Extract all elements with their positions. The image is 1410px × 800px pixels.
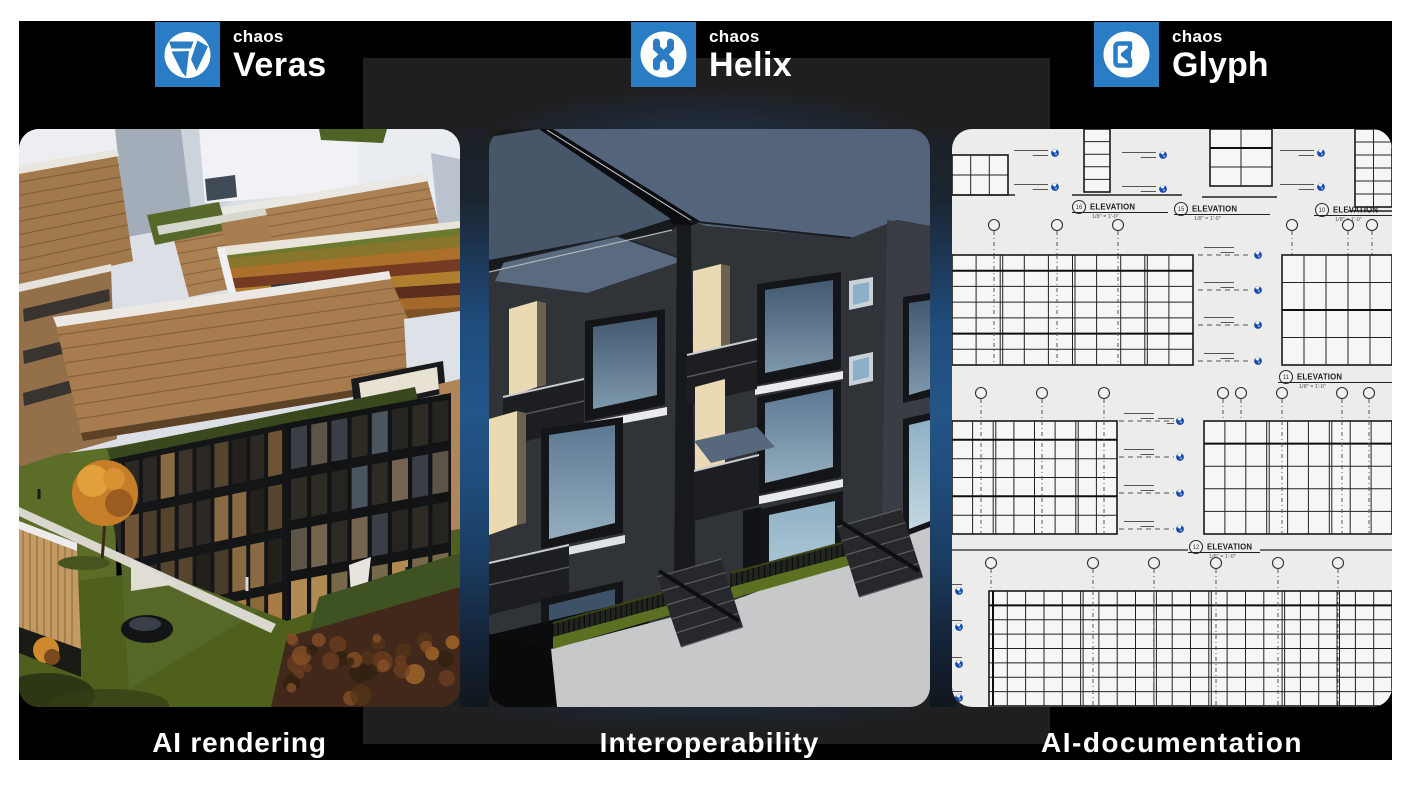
svg-text:ELEVATION: ELEVATION: [1333, 206, 1378, 215]
svg-text:1/8" = 1'-0": 1/8" = 1'-0": [1194, 216, 1221, 222]
svg-text:15: 15: [1178, 207, 1185, 213]
svg-text:ELEVATION: ELEVATION: [1192, 205, 1237, 214]
svg-text:ELEVATION: ELEVATION: [1090, 203, 1135, 212]
svg-text:1/8" = 1'-0": 1/8" = 1'-0": [1092, 214, 1119, 220]
svg-text:12: 12: [1193, 545, 1200, 551]
svg-text:1/8" = 1'-0": 1/8" = 1'-0": [1299, 384, 1326, 390]
svg-text:16: 16: [1076, 205, 1083, 211]
svg-text:ELEVATION: ELEVATION: [1207, 543, 1252, 552]
svg-text:10: 10: [1319, 208, 1326, 214]
svg-text:ELEVATION: ELEVATION: [1297, 373, 1342, 382]
svg-text:11: 11: [1283, 375, 1290, 381]
